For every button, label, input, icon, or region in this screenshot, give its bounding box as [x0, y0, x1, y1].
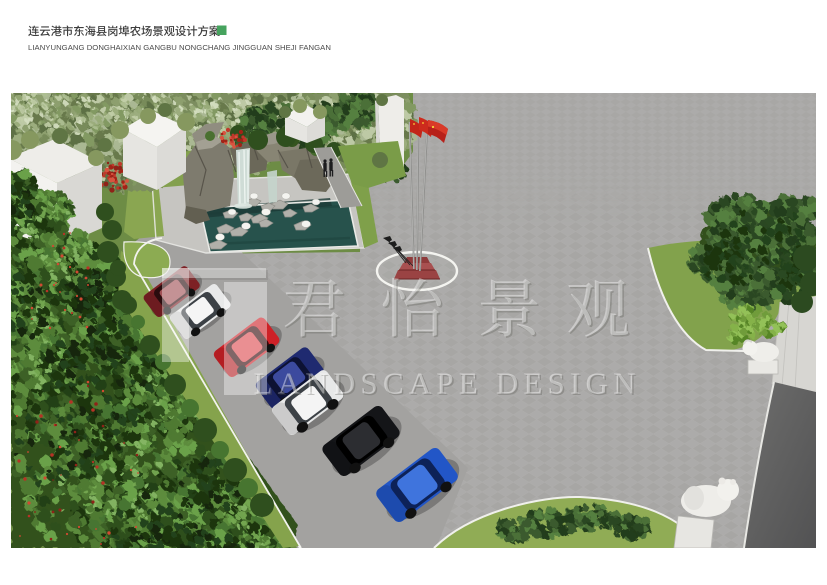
svg-text:LIANYUNGANG DONGHAIXIAN GANGBU: LIANYUNGANG DONGHAIXIAN GANGBU NONGCHANG…	[28, 43, 331, 52]
